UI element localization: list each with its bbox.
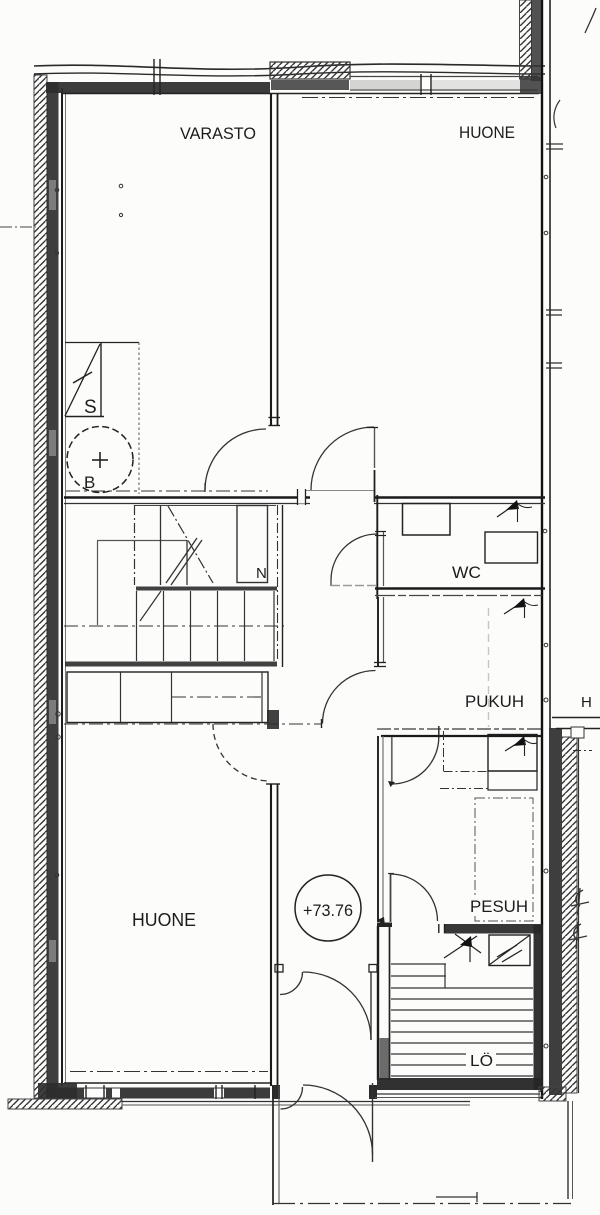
svg-text:PUKUH: PUKUH [465,692,524,711]
svg-text:N: N [256,565,267,582]
svg-text:+73.76: +73.76 [303,901,353,920]
svg-text:HUONE: HUONE [459,123,515,142]
svg-text:VARASTO: VARASTO [180,124,256,143]
svg-text:B: B [84,473,95,492]
svg-text:HUONE: HUONE [132,910,196,930]
svg-text:S: S [84,397,97,418]
svg-text:PESUH: PESUH [470,897,528,916]
svg-text:LÖ: LÖ [470,1052,493,1070]
svg-text:H: H [581,694,592,711]
svg-text:WC: WC [452,563,481,582]
